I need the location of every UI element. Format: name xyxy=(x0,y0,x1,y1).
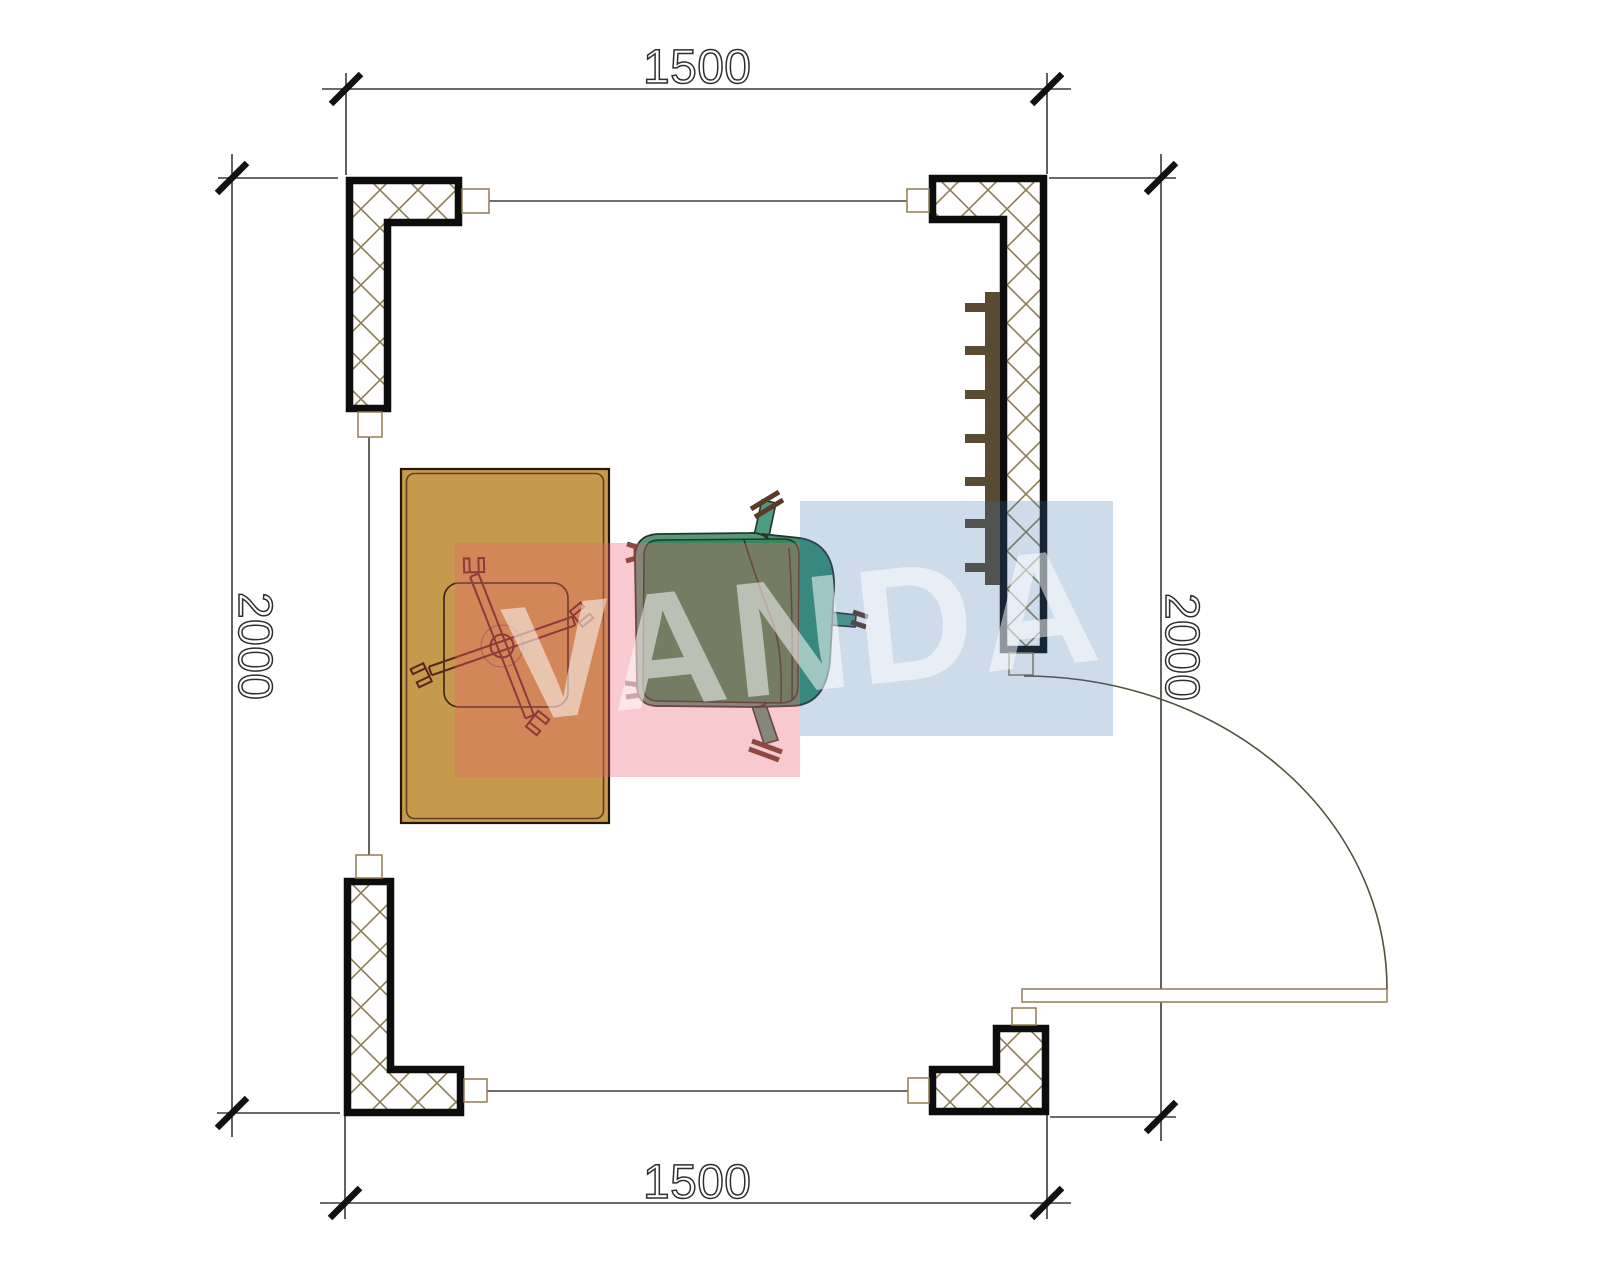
svg-text:1500: 1500 xyxy=(643,1156,751,1209)
svg-text:2000: 2000 xyxy=(228,592,281,700)
svg-text:1500: 1500 xyxy=(643,41,751,94)
svg-text:2000: 2000 xyxy=(1155,593,1208,701)
